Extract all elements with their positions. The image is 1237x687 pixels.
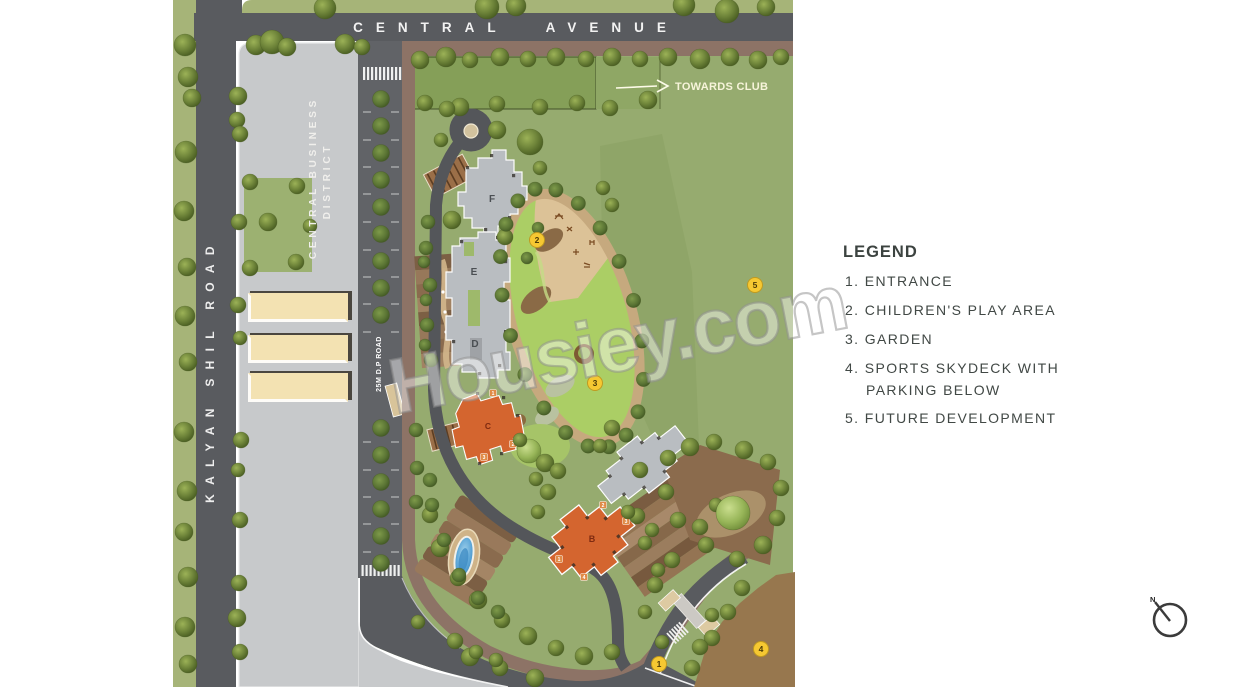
svg-text:LEGEND: LEGEND	[843, 243, 918, 261]
svg-text:N: N	[1150, 595, 1155, 604]
svg-text:4. SPORTS SKYDECK WITH: 4. SPORTS SKYDECK WITH	[845, 360, 1059, 376]
svg-text:3: 3	[625, 519, 628, 525]
svg-text:1: 1	[657, 659, 662, 669]
svg-text:3. GARDEN: 3. GARDEN	[845, 331, 933, 347]
svg-text:3: 3	[483, 455, 486, 461]
svg-text:B: B	[589, 534, 596, 544]
svg-text:PARKING BELOW: PARKING BELOW	[866, 382, 1001, 398]
svg-text:F: F	[489, 194, 495, 205]
svg-text:4: 4	[759, 644, 764, 654]
svg-text:DISTRICT: DISTRICT	[322, 143, 333, 220]
svg-text:2: 2	[535, 235, 540, 245]
svg-text:CENTRAL BUSINESS: CENTRAL BUSINESS	[308, 97, 319, 259]
svg-text:2. CHILDREN'S PLAY AREA: 2. CHILDREN'S PLAY AREA	[845, 302, 1056, 318]
svg-text:E: E	[471, 267, 478, 278]
svg-text:4: 4	[583, 575, 586, 581]
svg-text:1. ENTRANCE: 1. ENTRANCE	[845, 273, 953, 289]
svg-text:CENTRAL AVENUE: CENTRAL AVENUE	[353, 20, 679, 35]
svg-text:1: 1	[558, 557, 561, 563]
svg-text:2: 2	[602, 503, 605, 509]
svg-text:C: C	[485, 421, 491, 431]
svg-text:TOWARDS CLUB: TOWARDS CLUB	[675, 81, 768, 93]
svg-text:5. FUTURE DEVELOPMENT: 5. FUTURE DEVELOPMENT	[845, 410, 1056, 426]
svg-text:KALYAN SHIL ROAD: KALYAN SHIL ROAD	[203, 237, 217, 503]
